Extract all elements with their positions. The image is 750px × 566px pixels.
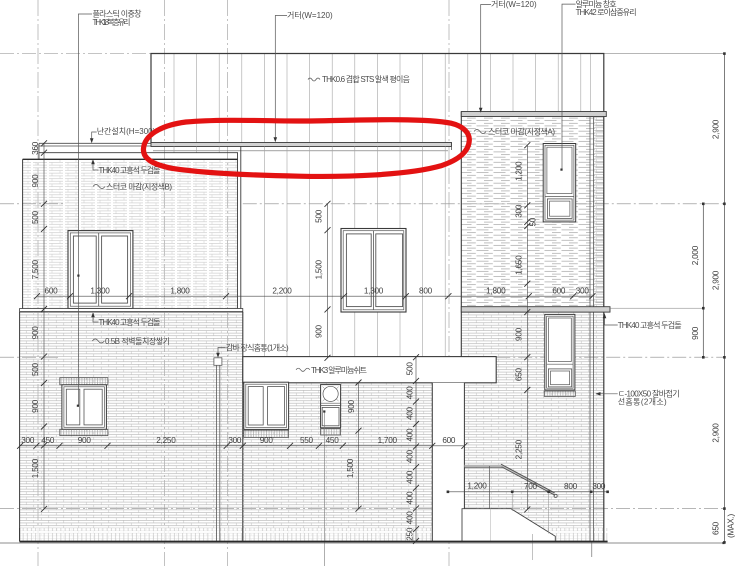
svg-text:250: 250 [406, 527, 415, 541]
svg-text:900: 900 [347, 399, 356, 413]
svg-text:650: 650 [712, 521, 721, 535]
svg-text:900: 900 [78, 436, 92, 445]
svg-text:THK3 알루미늄쉬트: THK3 알루미늄쉬트 [311, 365, 367, 375]
svg-text:700: 700 [524, 482, 538, 491]
svg-text:300: 300 [576, 287, 590, 296]
svg-text:550: 550 [300, 436, 314, 445]
svg-text:400: 400 [406, 491, 415, 505]
svg-text:800: 800 [419, 287, 433, 296]
svg-text:0.5B 적벽돌치장쌓기: 0.5B 적벽돌치장쌓기 [105, 336, 170, 346]
svg-text:400: 400 [406, 428, 415, 442]
svg-text:1,500: 1,500 [346, 458, 355, 478]
svg-text:1,200: 1,200 [515, 161, 524, 181]
svg-text:1,200: 1,200 [467, 482, 487, 491]
svg-text:2,900: 2,900 [712, 119, 721, 139]
svg-text:거터(W=120): 거터(W=120) [287, 11, 333, 20]
svg-text:650: 650 [515, 368, 524, 382]
svg-text:450: 450 [326, 436, 340, 445]
svg-text:800: 800 [564, 482, 578, 491]
svg-text:900: 900 [691, 326, 700, 340]
svg-text:THK42 로이삼중유리: THK42 로이삼중유리 [576, 7, 637, 17]
svg-text:300: 300 [21, 436, 35, 445]
svg-text:스터코 마감(지정색B): 스터코 마감(지정색B) [106, 182, 172, 192]
svg-text:플라스틱 이중창: 플라스틱 이중창 [93, 9, 143, 19]
svg-text:1,300: 1,300 [90, 287, 110, 296]
svg-text:2,250: 2,250 [515, 439, 524, 459]
svg-text:600: 600 [552, 287, 566, 296]
svg-text:1,800: 1,800 [486, 287, 506, 296]
svg-text:1,300: 1,300 [364, 287, 384, 296]
svg-text:감바 장식홈통(1개소): 감바 장식홈통(1개소) [226, 342, 289, 352]
svg-text:THK40 고흥석 두겁돌: THK40 고흥석 두겁돌 [99, 165, 161, 175]
svg-text:THK40 고흥석 두겁돌: THK40 고흥석 두겁돌 [99, 317, 161, 327]
svg-text:600: 600 [45, 287, 59, 296]
svg-text:(MAX.): (MAX.) [727, 513, 736, 537]
svg-text:1,500: 1,500 [31, 458, 40, 478]
svg-text:2,000: 2,000 [691, 245, 700, 265]
svg-text:거터(W=120): 거터(W=120) [491, 0, 537, 9]
svg-text:400: 400 [406, 386, 415, 400]
svg-text:900: 900 [31, 399, 40, 413]
svg-text:1,700: 1,700 [378, 436, 398, 445]
svg-text:2,900: 2,900 [712, 270, 721, 290]
svg-text:THK40 고흥석 두겁돌: THK40 고흥석 두겁돌 [618, 320, 682, 330]
svg-text:360: 360 [31, 141, 40, 155]
svg-text:400: 400 [406, 470, 415, 484]
svg-text:900: 900 [260, 436, 274, 445]
svg-text:900: 900 [31, 174, 40, 188]
svg-text:1,650: 1,650 [515, 255, 524, 275]
svg-text:300: 300 [228, 436, 242, 445]
svg-text:스터코 마감(지정색A): 스터코 마감(지정색A) [488, 127, 555, 137]
svg-text:500: 500 [314, 209, 323, 223]
svg-text:300: 300 [515, 204, 524, 218]
svg-text:난간설치(H=300): 난간설치(H=300) [97, 126, 156, 136]
svg-text:2,250: 2,250 [156, 436, 176, 445]
svg-text:2,200: 2,200 [272, 287, 292, 296]
svg-text:400: 400 [406, 406, 415, 420]
svg-text:1,500: 1,500 [314, 259, 323, 279]
svg-text:400: 400 [406, 450, 415, 464]
svg-text:900: 900 [31, 326, 40, 340]
svg-text:500: 500 [406, 362, 415, 376]
svg-text:2,900: 2,900 [712, 423, 721, 443]
svg-text:7,500: 7,500 [31, 259, 40, 279]
svg-text:500: 500 [31, 210, 40, 224]
svg-text:선홈통(2개소): 선홈통(2개소) [618, 397, 667, 407]
svg-text:400: 400 [406, 511, 415, 525]
svg-text:900: 900 [314, 324, 323, 338]
svg-text:THK0.6 겹합 STS 알색 평이음: THK0.6 겹합 STS 알색 평이음 [322, 74, 410, 84]
svg-text:50: 50 [529, 217, 538, 226]
svg-text:300: 300 [592, 482, 606, 491]
svg-text:THK18 복층유리: THK18 복층유리 [93, 18, 131, 27]
svg-text:600: 600 [442, 436, 456, 445]
svg-text:500: 500 [31, 362, 40, 376]
svg-text:450: 450 [41, 436, 55, 445]
svg-text:1,800: 1,800 [170, 287, 190, 296]
svg-text:900: 900 [515, 327, 524, 341]
